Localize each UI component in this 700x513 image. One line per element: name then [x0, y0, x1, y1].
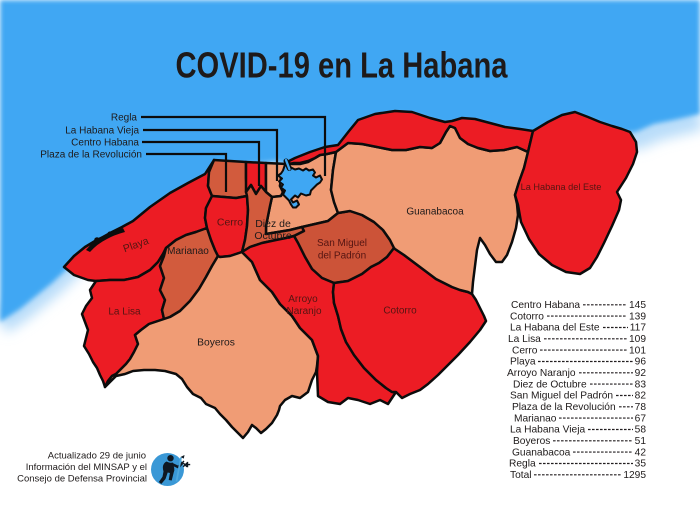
svg-text:139: 139	[629, 311, 646, 322]
svg-text:Guanabacoa: Guanabacoa	[512, 447, 571, 458]
svg-text:La Lisa: La Lisa	[108, 307, 141, 318]
svg-text:Marianao: Marianao	[514, 413, 557, 424]
svg-text:145: 145	[629, 300, 646, 311]
svg-text:Guanabacoa: Guanabacoa	[406, 207, 464, 218]
svg-text:COVID-19 en La Habana: COVID-19 en La Habana	[176, 45, 509, 86]
svg-text:Centro Habana: Centro Habana	[71, 138, 139, 149]
svg-text:La Lisa: La Lisa	[508, 334, 541, 345]
svg-text:67: 67	[635, 413, 647, 424]
svg-text:Cerro: Cerro	[217, 217, 243, 229]
svg-text:82: 82	[635, 391, 647, 402]
svg-text:Naranjo: Naranjo	[286, 306, 321, 317]
svg-text:Consejo de Defensa Provincial: Consejo de Defensa Provincial	[17, 474, 147, 485]
svg-text:del Padrón: del Padrón	[318, 251, 366, 262]
svg-text:109: 109	[629, 334, 646, 345]
svg-text:Regla: Regla	[509, 459, 536, 470]
svg-text:Arroyo: Arroyo	[288, 294, 318, 305]
svg-text:Marianao: Marianao	[167, 246, 209, 257]
svg-text:101: 101	[629, 345, 646, 356]
svg-text:La Habana del Este: La Habana del Este	[521, 182, 602, 192]
svg-text:Boyeros: Boyeros	[197, 338, 235, 349]
svg-text:58: 58	[635, 425, 647, 436]
svg-text:Centro Habana: Centro Habana	[511, 300, 580, 311]
svg-text:Playa: Playa	[510, 357, 536, 368]
svg-text:La Habana Vieja: La Habana Vieja	[510, 425, 585, 436]
svg-text:96: 96	[635, 357, 647, 368]
svg-text:San Miguel del Padrón: San Miguel del Padrón	[510, 391, 613, 402]
svg-text:Cotorro: Cotorro	[510, 311, 544, 322]
svg-text:Cerro: Cerro	[512, 345, 538, 356]
svg-text:Arroyo Naranjo: Arroyo Naranjo	[507, 368, 576, 379]
svg-text:Octubre: Octubre	[254, 230, 292, 242]
svg-text:Cotorro: Cotorro	[383, 306, 417, 317]
svg-text:La Habana Vieja: La Habana Vieja	[65, 126, 139, 137]
svg-text:51: 51	[635, 436, 647, 447]
svg-text:San Miguel: San Miguel	[317, 238, 367, 249]
svg-text:Total: Total	[510, 470, 532, 481]
svg-text:Actualizado 29 de junio: Actualizado 29 de junio	[48, 451, 146, 462]
svg-text:83: 83	[635, 379, 647, 390]
svg-text:Información del MINSAP y el: Información del MINSAP y el	[26, 462, 147, 473]
svg-text:1295: 1295	[623, 470, 646, 481]
svg-text:35: 35	[635, 459, 647, 470]
svg-text:Diez de Octubre: Diez de Octubre	[513, 379, 587, 390]
svg-text:La Habana del Este: La Habana del Este	[510, 323, 600, 334]
svg-text:117: 117	[630, 323, 647, 334]
svg-text:Diez de: Diez de	[255, 218, 291, 230]
svg-text:42: 42	[635, 447, 647, 458]
svg-text:Regla: Regla	[111, 113, 138, 124]
svg-text:92: 92	[635, 368, 647, 379]
svg-text:78: 78	[635, 402, 647, 413]
svg-text:Plaza de la Revolución: Plaza de la Revolución	[40, 150, 142, 161]
svg-text:Boyeros: Boyeros	[513, 436, 550, 447]
svg-text:Plaza de la Revolución: Plaza de la Revolución	[512, 402, 616, 413]
